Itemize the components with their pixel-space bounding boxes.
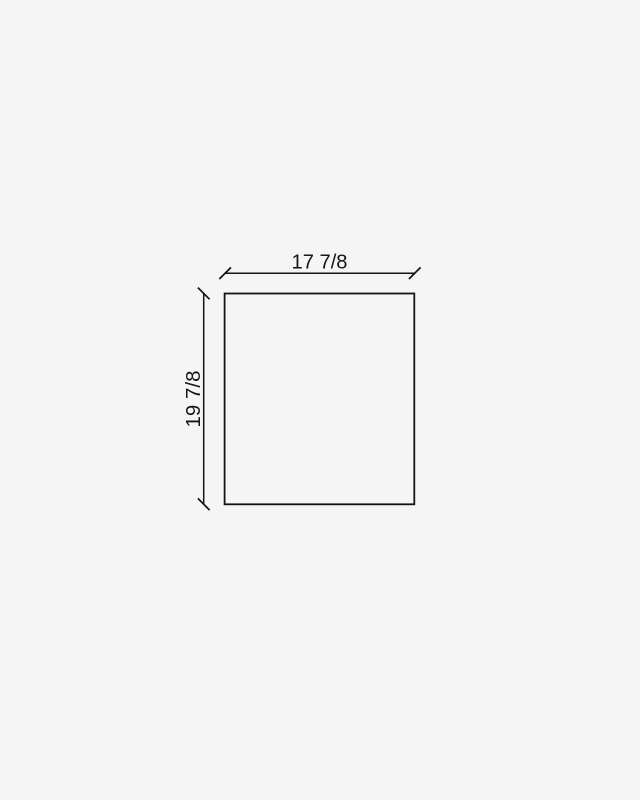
svg-text:17 7/8: 17 7/8 [292, 250, 348, 273]
svg-text:19 7/8: 19 7/8 [182, 371, 205, 428]
